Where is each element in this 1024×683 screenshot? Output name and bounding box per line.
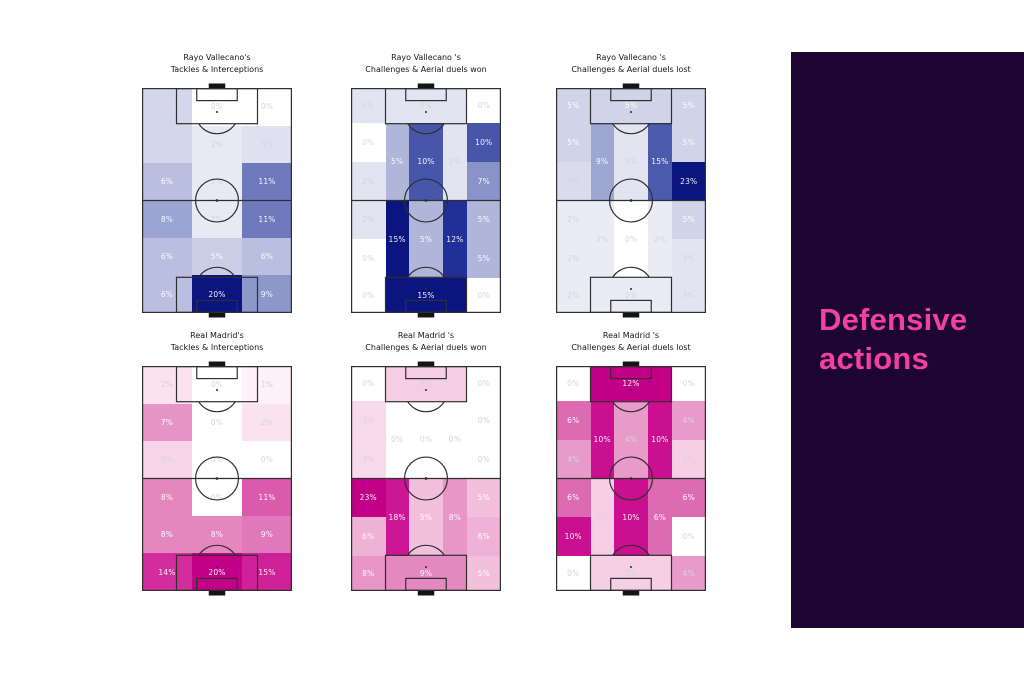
zone-value-label: 5%	[478, 569, 490, 578]
goal-bottom	[418, 590, 435, 595]
zone-cell: 0%	[351, 239, 386, 278]
zone-cell: 0%	[386, 401, 409, 478]
zone-value-label: 10%	[651, 435, 668, 444]
zone-cell: 0%	[467, 366, 502, 401]
zone-cell: 2%	[192, 163, 242, 201]
zone-cell: 6%	[556, 401, 591, 440]
zone-cell: 2%	[443, 123, 466, 200]
zone-value-label: 0%	[391, 435, 403, 444]
zone-value-label: 18%	[388, 513, 405, 522]
zone-cell: 4%	[386, 366, 467, 401]
zone-value-label: 0%	[362, 138, 374, 147]
zone-value-label: 0%	[625, 235, 637, 244]
zone-cell: 15%	[648, 123, 671, 200]
zone-cell: 0%	[192, 366, 242, 404]
zone-value-label: 9%	[261, 530, 273, 539]
chart-title-line2: Challenges & Aerial duels lost	[556, 342, 706, 354]
zone-cell: 2%	[591, 201, 614, 278]
zone-value-label: 4%	[625, 435, 637, 444]
zone-cell: 2%	[142, 366, 192, 404]
zone-cell: 9%	[242, 516, 292, 553]
zone-value-label: 2%	[625, 569, 637, 578]
zone-cell: 6%	[648, 479, 671, 556]
zone-cell: 2%	[648, 201, 671, 278]
zone-value-label: 5%	[211, 252, 223, 261]
chart-title-line1: Real Madrid's	[142, 330, 292, 342]
zone-value-label: 7%	[478, 177, 490, 186]
zone-cell: 5%	[409, 201, 444, 278]
zone-value-label: 11%	[258, 177, 275, 186]
zone-cell: 9%	[591, 123, 614, 200]
goal-bottom	[418, 312, 435, 317]
zone-cell: 6%	[142, 163, 192, 201]
zone-cell: 10%	[556, 517, 591, 556]
zone-cell: 2%	[242, 404, 292, 441]
zone-cell: 10%	[409, 123, 444, 200]
zone-value-label: 10%	[622, 513, 639, 522]
zone-value-label: 3%	[683, 291, 695, 300]
zone-value-label: 11%	[258, 215, 275, 224]
zone-cell: 0%	[556, 366, 591, 401]
zone-value-label: 23%	[680, 177, 697, 186]
zone-value-label: 15%	[417, 291, 434, 300]
zone-value-label: 2%	[261, 418, 273, 427]
zone-value-label: 15%	[258, 568, 275, 577]
zone-value-label: 6%	[654, 513, 666, 522]
zone-value-label: 4%	[683, 569, 695, 578]
zone-cell: 2%	[192, 201, 242, 239]
pitch-heatmap-5: Real Madrid 'sChallenges & Aerial duels …	[556, 330, 706, 591]
zone-value-label: 1%	[261, 380, 273, 389]
zone-cell: 0%	[672, 366, 707, 401]
zone-value-label: 8%	[161, 215, 173, 224]
zone-cell: 15%	[386, 278, 467, 313]
zone-cell: 0%	[242, 441, 292, 479]
zone-cell: 3%	[351, 401, 386, 440]
zone-value-label: 0%	[362, 291, 374, 300]
pitch: 5%5%5%5%4%9%3%15%5%23%2%2%2%0%2%5%3%2%2%…	[556, 88, 706, 313]
zone-cell: 0%	[192, 404, 242, 441]
zone-cell: 10%	[467, 123, 502, 162]
zone-value-label: 8%	[449, 513, 461, 522]
zone-value-label: 5%	[478, 215, 490, 224]
zone-cell: 20%	[192, 275, 242, 313]
zone-cell: 6%	[142, 275, 192, 313]
zone-value-label: 9%	[596, 157, 608, 166]
zone-cell: 2%	[351, 88, 386, 123]
zone-cell: 2%	[591, 556, 672, 591]
zone-cell: 8%	[443, 479, 466, 556]
chart-title-line1: Rayo Vallecano 's	[556, 52, 706, 64]
zone-cell: 2%	[556, 201, 591, 239]
zone-value-label: 2%	[161, 380, 173, 389]
zone-cell: 0%	[614, 201, 649, 278]
zone-cell: 20%	[192, 553, 242, 591]
zone-cell: 2%	[591, 278, 672, 313]
zone-value-label: 2%	[567, 215, 579, 224]
zone-value-label: 2%	[362, 177, 374, 186]
chart-title: Real Madrid 'sChallenges & Aerial duels …	[556, 330, 706, 362]
zone-value-label: 6%	[567, 416, 579, 425]
zone-cell: 10%	[591, 401, 614, 478]
zone-value-label: 3%	[683, 254, 695, 263]
zone-cell: 12%	[591, 366, 672, 401]
zone-value-label: 0%	[683, 379, 695, 388]
zone-value-label: 10%	[593, 435, 610, 444]
zone-value-label: 5%	[420, 235, 432, 244]
zone-cell: 0%	[242, 88, 292, 126]
zone-cell: 23%	[672, 162, 707, 200]
zone-value-label: 2%	[654, 235, 666, 244]
zone-cell: 5%	[672, 123, 707, 162]
zone-value-label: 3%	[625, 157, 637, 166]
chart-title-line1: Real Madrid 's	[351, 330, 501, 342]
zone-value-label: 10%	[565, 532, 582, 541]
zone-value-label: 0%	[362, 379, 374, 388]
zone-value-label: 2%	[567, 254, 579, 263]
zone-value-label: 4%	[567, 455, 579, 464]
zone-value-label: 10%	[475, 138, 492, 147]
pitch-heatmap-0: Rayo Vallecano'sTackles & Interceptions4…	[142, 52, 292, 313]
zone-cell: 7%	[142, 404, 192, 441]
zone-cell: 2%	[351, 162, 386, 200]
zone-cell: 5%	[672, 88, 707, 123]
zone-cell: 8%	[192, 516, 242, 553]
zone-cell: 0%	[409, 401, 444, 478]
zone-value-label: 3%	[362, 416, 374, 425]
zone-cell: 0%	[192, 88, 242, 126]
zone-cell: 11%	[242, 163, 292, 201]
zone-value-label: 2%	[596, 513, 608, 522]
pitch-heatmap-1: Rayo Vallecano 'sChallenges & Aerial due…	[351, 52, 501, 313]
zone-value-label: 15%	[388, 235, 405, 244]
zone-value-label: 0%	[478, 101, 490, 110]
pitch-heatmap-3: Real Madrid'sTackles & Interceptions2%0%…	[142, 330, 292, 591]
zone-value-label: 0%	[211, 418, 223, 427]
zone-cell: 6%	[556, 479, 591, 517]
chart-title-line2: Challenges & Aerial duels won	[351, 342, 501, 354]
zone-cell: 0%	[192, 441, 242, 479]
pitch-heatmap-2: Rayo Vallecano 'sChallenges & Aerial due…	[556, 52, 706, 313]
pitch: 2%2%0%0%2%5%10%2%10%7%2%0%15%5%12%5%5%0%…	[351, 88, 501, 313]
zone-cell: 2%	[591, 479, 614, 556]
zone-value-label: 6%	[478, 532, 490, 541]
zone-cell: 7%	[467, 162, 502, 200]
zone-value-label: 3%	[161, 455, 173, 464]
zone-cell: 9%	[242, 275, 292, 313]
zone-cell: 14%	[142, 553, 192, 591]
zone-cell: 4%	[672, 556, 707, 591]
pitch-heatmap-4: Real Madrid 'sChallenges & Aerial duels …	[351, 330, 501, 591]
zone-value-label: 3%	[362, 455, 374, 464]
zone-cell: 9%	[386, 556, 467, 591]
zone-cell: 1%	[242, 366, 292, 404]
zone-value-label: 0%	[478, 379, 490, 388]
zone-cell: 5%	[467, 556, 502, 591]
zone-value-label: 2%	[211, 215, 223, 224]
zone-cell: 3%	[351, 440, 386, 478]
sidebar-panel: Defensive actions	[791, 52, 1024, 628]
zone-value-label: 2%	[567, 291, 579, 300]
zone-value-label: 8%	[161, 530, 173, 539]
goal-bottom	[623, 590, 640, 595]
zone-value-label: 20%	[208, 568, 225, 577]
zone-value-label: 8%	[161, 493, 173, 502]
zone-cell: 4%	[556, 162, 591, 200]
chart-title: Rayo Vallecano'sTackles & Interceptions	[142, 52, 292, 84]
zone-value-label: 0%	[478, 291, 490, 300]
zone-cell: 5%	[467, 479, 502, 517]
zone-value-label: 9%	[420, 569, 432, 578]
chart-title-line1: Rayo Vallecano's	[142, 52, 292, 64]
zone-cell: 12%	[443, 201, 466, 278]
zone-cell: 5%	[386, 123, 409, 200]
zone-value-label: 5%	[625, 101, 637, 110]
zone-cell: 0%	[351, 123, 386, 162]
zone-value-label: 6%	[161, 252, 173, 261]
zone-value-label: 2%	[362, 215, 374, 224]
zone-cell: 6%	[467, 517, 502, 556]
zone-value-label: 6%	[161, 177, 173, 186]
pitch: 0%4%0%3%3%0%0%0%0%0%23%6%18%5%8%5%6%8%9%…	[351, 366, 501, 591]
zone-value-label: 5%	[683, 215, 695, 224]
zone-cell: 0%	[351, 278, 386, 313]
pitch: 4%0%0%4%2%3%6%2%11%8%2%11%6%5%6%6%20%9%	[142, 88, 292, 313]
zone-value-label: 4%	[161, 140, 173, 149]
zone-value-label: 5%	[683, 101, 695, 110]
zone-value-label: 4%	[683, 416, 695, 425]
zone-value-label: 4%	[567, 177, 579, 186]
goal-bottom	[209, 312, 226, 317]
zone-cell: 4%	[672, 401, 707, 440]
zone-value-label: 12%	[446, 235, 463, 244]
chart-title-line1: Real Madrid 's	[556, 330, 706, 342]
zone-value-label: 0%	[478, 455, 490, 464]
zone-value-label: 6%	[261, 252, 273, 261]
zone-cell: 5%	[409, 479, 444, 556]
chart-title-line1: Rayo Vallecano 's	[351, 52, 501, 64]
zone-value-label: 6%	[683, 493, 695, 502]
zone-value-label: 5%	[478, 493, 490, 502]
zone-value-label: 0%	[449, 435, 461, 444]
zone-value-label: 7%	[161, 418, 173, 427]
zone-cell: 0%	[556, 556, 591, 591]
zone-value-label: 0%	[261, 102, 273, 111]
zone-cell: 23%	[351, 479, 386, 517]
zone-cell: 6%	[242, 238, 292, 275]
zone-cell: 5%	[591, 88, 672, 123]
chart-title-line2: Challenges & Aerial duels lost	[556, 64, 706, 76]
chart-title: Real Madrid'sTackles & Interceptions	[142, 330, 292, 362]
zone-cell: 0%	[351, 366, 386, 401]
zone-value-label: 2%	[625, 291, 637, 300]
zone-cell: 5%	[556, 88, 591, 123]
zone-value-label: 4%	[161, 102, 173, 111]
zone-cell: 6%	[142, 238, 192, 275]
zone-value-label: 4%	[420, 379, 432, 388]
zone-value-label: 0%	[211, 455, 223, 464]
zone-value-label: 11%	[258, 493, 275, 502]
zone-value-label: 9%	[261, 290, 273, 299]
zone-cell: 8%	[142, 479, 192, 517]
zone-value-label: 3%	[261, 140, 273, 149]
zone-value-label: 10%	[417, 157, 434, 166]
zone-cell: 2%	[556, 239, 591, 278]
zone-cell: 5%	[192, 238, 242, 275]
zone-cell: 10%	[614, 479, 649, 556]
pitch: 0%12%0%6%4%10%4%10%4%2%6%10%2%10%6%6%0%0…	[556, 366, 706, 591]
chart-title: Rayo Vallecano 'sChallenges & Aerial due…	[351, 52, 501, 84]
zone-value-label: 14%	[158, 568, 175, 577]
zone-value-label: 2%	[420, 101, 432, 110]
zone-cell: 10%	[648, 401, 671, 478]
zone-cell: 5%	[467, 239, 502, 278]
zone-cell: 0%	[467, 401, 502, 440]
zone-value-label: 2%	[449, 157, 461, 166]
zone-value-label: 6%	[567, 493, 579, 502]
chart-title: Rayo Vallecano 'sChallenges & Aerial due…	[556, 52, 706, 84]
zone-cell: 6%	[351, 517, 386, 556]
zone-cell: 2%	[351, 201, 386, 239]
zone-cell: 0%	[467, 440, 502, 478]
zone-cell: 3%	[242, 126, 292, 163]
zone-value-label: 8%	[362, 569, 374, 578]
zone-value-label: 0%	[420, 435, 432, 444]
zone-cell: 0%	[192, 479, 242, 517]
zone-value-label: 2%	[596, 235, 608, 244]
chart-title: Real Madrid 'sChallenges & Aerial duels …	[351, 330, 501, 362]
zone-value-label: 0%	[683, 532, 695, 541]
zone-value-label: 2%	[683, 455, 695, 464]
zone-cell: 18%	[386, 479, 409, 556]
zone-value-label: 6%	[362, 532, 374, 541]
zone-value-label: 5%	[567, 138, 579, 147]
zone-cell: 0%	[467, 278, 502, 313]
zone-cell: 15%	[386, 201, 409, 278]
zone-value-label: 2%	[362, 101, 374, 110]
chart-title-line2: Tackles & Interceptions	[142, 342, 292, 354]
zone-cell: 3%	[672, 239, 707, 278]
zone-cell: 8%	[351, 556, 386, 591]
sidebar-title: Defensive actions	[819, 300, 1004, 378]
zone-value-label: 8%	[211, 530, 223, 539]
zone-cell: 4%	[556, 440, 591, 478]
zone-value-label: 0%	[567, 569, 579, 578]
zone-value-label: 20%	[208, 290, 225, 299]
zone-cell: 11%	[242, 201, 292, 239]
zone-value-label: 0%	[261, 455, 273, 464]
zone-cell: 3%	[142, 441, 192, 479]
chart-title-line2: Tackles & Interceptions	[142, 64, 292, 76]
zone-cell: 5%	[556, 123, 591, 162]
zone-value-label: 2%	[211, 177, 223, 186]
zone-cell: 5%	[672, 201, 707, 239]
zone-cell: 15%	[242, 553, 292, 591]
zone-cell: 8%	[142, 516, 192, 553]
goal-bottom	[209, 590, 226, 595]
zone-cell: 5%	[467, 201, 502, 239]
zone-cell: 6%	[672, 479, 707, 517]
zone-cell: 2%	[672, 440, 707, 478]
zone-value-label: 15%	[651, 157, 668, 166]
zone-cell: 2%	[386, 88, 467, 123]
zone-cell: 0%	[467, 88, 502, 123]
zone-cell: 2%	[192, 126, 242, 163]
zone-value-label: 5%	[683, 138, 695, 147]
zone-value-label: 5%	[391, 157, 403, 166]
zone-cell: 3%	[614, 123, 649, 200]
zone-cell: 4%	[142, 126, 192, 163]
zone-cell: 8%	[142, 201, 192, 239]
zone-value-label: 0%	[211, 380, 223, 389]
zone-value-label: 12%	[622, 379, 639, 388]
zone-value-label: 23%	[360, 493, 377, 502]
zone-value-label: 0%	[567, 379, 579, 388]
zone-cell: 4%	[614, 401, 649, 478]
zone-cell: 0%	[672, 517, 707, 556]
zone-value-label: 5%	[478, 254, 490, 263]
zone-value-label: 0%	[211, 102, 223, 111]
report-canvas: Rayo Vallecano'sTackles & Interceptions4…	[0, 0, 1024, 683]
chart-title-line2: Challenges & Aerial duels won	[351, 64, 501, 76]
zone-value-label: 6%	[161, 290, 173, 299]
zone-cell: 11%	[242, 479, 292, 517]
zone-value-label: 0%	[211, 493, 223, 502]
goal-bottom	[623, 312, 640, 317]
pitch: 2%0%1%7%0%2%3%0%0%8%0%11%8%8%9%14%20%15%	[142, 366, 292, 591]
zone-value-label: 5%	[567, 101, 579, 110]
zone-value-label: 0%	[478, 416, 490, 425]
zone-value-label: 0%	[362, 254, 374, 263]
zone-value-label: 2%	[211, 140, 223, 149]
zone-cell: 3%	[672, 278, 707, 313]
zone-cell: 0%	[443, 401, 466, 478]
zone-cell: 2%	[556, 278, 591, 313]
zone-value-label: 5%	[420, 513, 432, 522]
zone-cell: 4%	[142, 88, 192, 126]
